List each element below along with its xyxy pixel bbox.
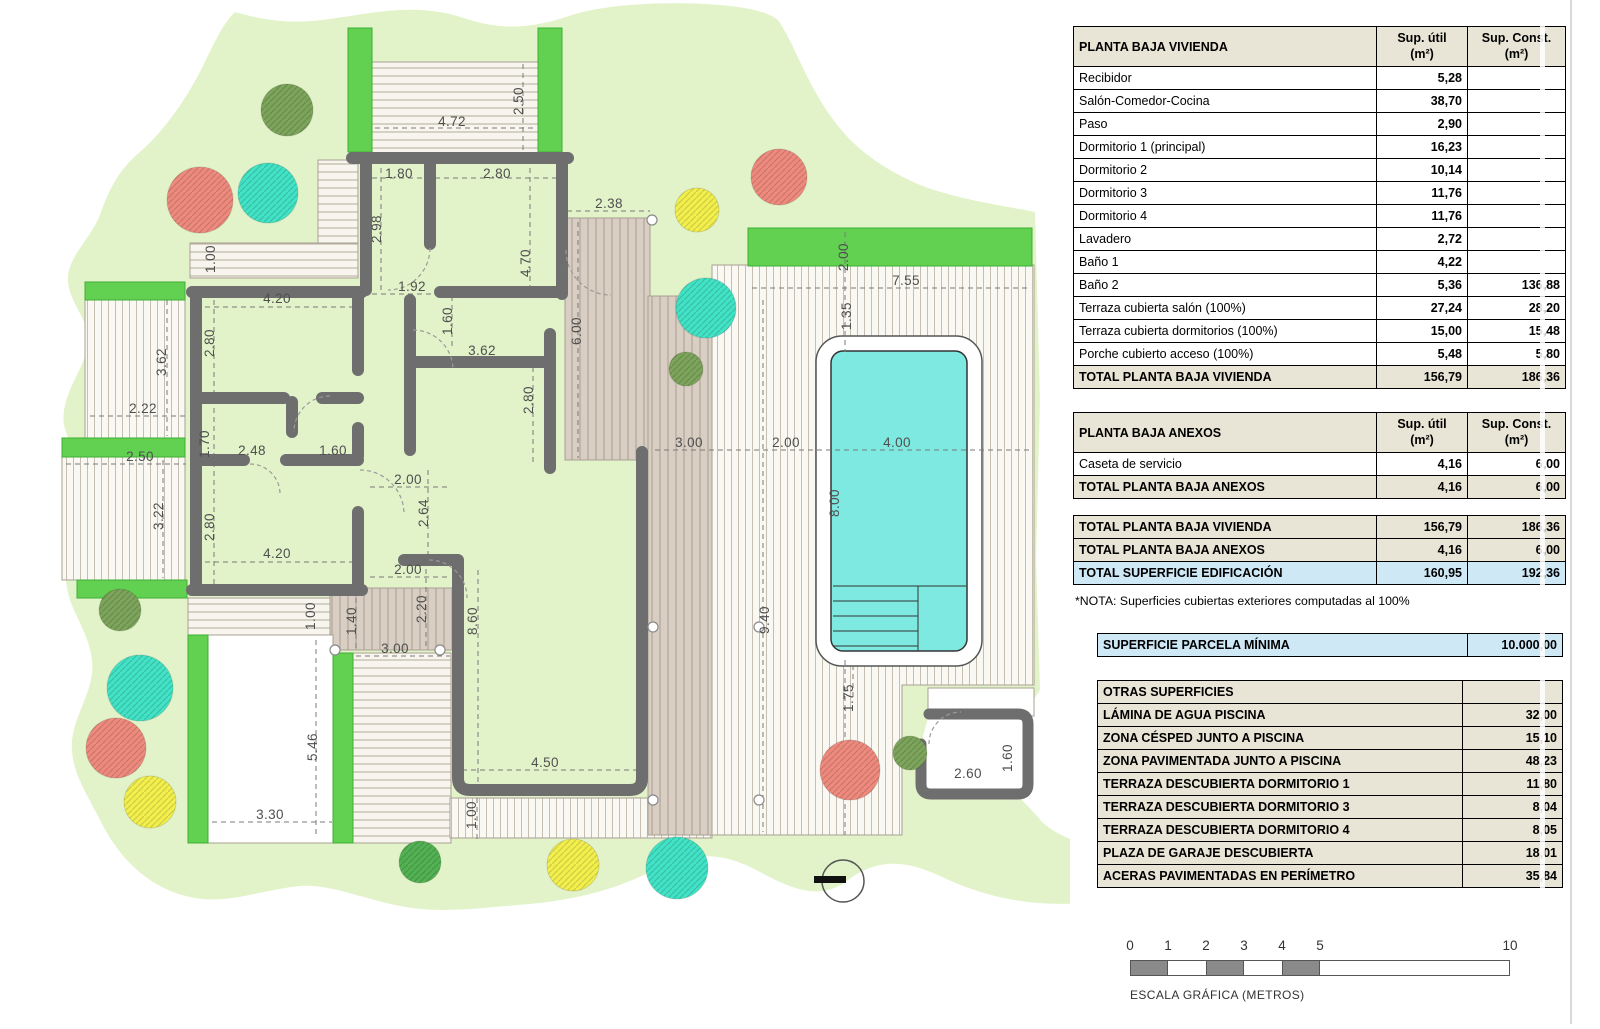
total-util-value: 156,79: [1377, 516, 1468, 539]
otras-value: 8,04: [1463, 796, 1563, 819]
dimension-label: 1.75: [841, 684, 856, 712]
row-label: Baño 2: [1074, 274, 1377, 297]
tree-hatch: [669, 352, 703, 386]
dimension-label: 4.70: [518, 249, 533, 277]
sup-util-value: 4,22: [1377, 251, 1468, 274]
dimension-label: 3.30: [256, 807, 284, 822]
row-label: Salón-Comedor-Cocina: [1074, 90, 1377, 113]
tree-hatch: [238, 163, 298, 223]
dimension-label: 1.60: [1000, 744, 1015, 772]
floor-plan: 2.504.721.802.802.382.984.706.001.921.60…: [0, 0, 1070, 1024]
table-title: PLANTA BAJA VIVIENDA: [1074, 27, 1377, 67]
sup-const-value: 15,48: [1468, 320, 1566, 343]
tree-hatch: [820, 740, 880, 800]
table-row: Caseta de servicio4,166,00: [1074, 453, 1566, 476]
dimension-label: 1.35: [839, 302, 854, 330]
otras-row: TERRAZA DESCUBIERTA DORMITORIO 111,80: [1098, 773, 1563, 796]
otras-label: PLAZA DE GARAJE DESCUBIERTA: [1098, 842, 1463, 865]
dimension-label: 1.60: [440, 307, 455, 335]
dimension-label: 1.70: [197, 430, 212, 458]
tree-hatch: [676, 278, 736, 338]
dimension-label: 2.80: [521, 386, 536, 414]
sup-const-value: [1468, 182, 1566, 205]
row-label: Dormitorio 2: [1074, 159, 1377, 182]
dimension-label: 2.64: [416, 499, 431, 527]
table-row: Recibidor5,28: [1074, 67, 1566, 90]
tree-hatch: [167, 167, 233, 233]
total-util-value: 156,79: [1377, 366, 1468, 389]
dimension-label: 4.72: [438, 114, 466, 129]
tree-hatch: [107, 655, 173, 721]
row-label: Terraza cubierta dormitorios (100%): [1074, 320, 1377, 343]
row-label: Caseta de servicio: [1074, 453, 1377, 476]
dimension-label: 7.55: [892, 273, 920, 288]
table-total-row: TOTAL PLANTA BAJA ANEXOS4,166,00: [1074, 476, 1566, 499]
table-row: Terraza cubierta salón (100%)27,2428,20: [1074, 297, 1566, 320]
dimension-label: 2.80: [202, 513, 217, 541]
total-const-value: 6,00: [1468, 539, 1566, 562]
row-label: Baño 1: [1074, 251, 1377, 274]
otras-label: TERRAZA DESCUBIERTA DORMITORIO 3: [1098, 796, 1463, 819]
porch-post: [435, 645, 445, 655]
dimension-label: 1.00: [303, 602, 318, 630]
note-text: *NOTA: Superficies cubiertas exteriores …: [1075, 594, 1410, 608]
dimension-label: 2.38: [595, 196, 623, 211]
otras-value: 11,80: [1463, 773, 1563, 796]
dimension-label: 4.00: [883, 435, 911, 450]
tree-hatch: [399, 841, 441, 883]
otras-value: 18,01: [1463, 842, 1563, 865]
sup-const-value: 136,88: [1468, 274, 1566, 297]
otras-label: ZONA PAVIMENTADA JUNTO A PISCINA: [1098, 750, 1463, 773]
porch-post: [330, 645, 340, 655]
dimension-label: 2.00: [772, 435, 800, 450]
table-row: Porche cubierto acceso (100%)5,485,80: [1074, 343, 1566, 366]
row-label: Terraza cubierta salón (100%): [1074, 297, 1377, 320]
total-util-value: 4,16: [1377, 539, 1468, 562]
row-label: Porche cubierto acceso (100%): [1074, 343, 1377, 366]
dimension-label: 4.50: [531, 755, 559, 770]
tree-hatch: [646, 837, 708, 899]
total-label: TOTAL PLANTA BAJA VIVIENDA: [1074, 366, 1377, 389]
tree-hatch: [547, 839, 599, 891]
total-const-value: 186,36: [1468, 516, 1566, 539]
total-label: TOTAL PLANTA BAJA ANEXOS: [1074, 476, 1377, 499]
dimension-label: 2.60: [954, 766, 982, 781]
total-const-value: 192,36: [1468, 562, 1566, 585]
total-const-value: 6,00: [1468, 476, 1566, 499]
otras-value: 48,23: [1463, 750, 1563, 773]
scan-artifact: [1540, 0, 1545, 900]
porch-post: [754, 795, 764, 805]
otras-row: LÁMINA DE AGUA PISCINA32,00: [1098, 704, 1563, 727]
sup-util-value: 27,24: [1377, 297, 1468, 320]
scale-tick-label: 1: [1164, 938, 1172, 953]
sup-const-value: [1468, 90, 1566, 113]
sup-util-value: 5,28: [1377, 67, 1468, 90]
table-row: Dormitorio 411,76: [1074, 205, 1566, 228]
porch-post: [648, 795, 658, 805]
otras-label: ZONA CÉSPED JUNTO A PISCINA: [1098, 727, 1463, 750]
column-header: Sup. útil(m²): [1377, 27, 1468, 67]
dimension-label: 2.50: [511, 87, 526, 115]
dimension-label: 6.00: [569, 317, 584, 345]
table-row: Baño 14,22: [1074, 251, 1566, 274]
dimension-label: 2.00: [394, 562, 422, 577]
otras-row: TERRAZA DESCUBIERTA DORMITORIO 48,05: [1098, 819, 1563, 842]
porch-post: [648, 622, 658, 632]
sup-const-value: [1468, 136, 1566, 159]
sup-util-value: 2,90: [1377, 113, 1468, 136]
dimension-label: 2.20: [414, 595, 429, 623]
tree-hatch: [99, 589, 141, 631]
totals-row: TOTAL PLANTA BAJA ANEXOS4,166,00: [1074, 539, 1566, 562]
table-title: PLANTA BAJA ANEXOS: [1074, 413, 1377, 453]
table-row: Lavadero2,72: [1074, 228, 1566, 251]
sup-const-value: 5,80: [1468, 343, 1566, 366]
column-header: Sup. Const.(m²): [1468, 27, 1566, 67]
dimension-label: 5.46: [305, 733, 320, 761]
table-row: Dormitorio 1 (principal)16,23: [1074, 136, 1566, 159]
sup-const-value: [1468, 228, 1566, 251]
sup-const-value: [1468, 251, 1566, 274]
otras-label: TERRAZA DESCUBIERTA DORMITORIO 4: [1098, 819, 1463, 842]
sup-const-value: [1468, 205, 1566, 228]
sup-const-value: [1468, 67, 1566, 90]
scale-bar-track: [1130, 960, 1510, 976]
column-header: Sup. útil(m²): [1377, 413, 1468, 453]
column-header: Sup. Const.(m²): [1468, 413, 1566, 453]
otras-row: TERRAZA DESCUBIERTA DORMITORIO 38,04: [1098, 796, 1563, 819]
otras-row: ZONA PAVIMENTADA JUNTO A PISCINA48,23: [1098, 750, 1563, 773]
otras-value: 32,00: [1463, 704, 1563, 727]
tree-hatch: [675, 188, 719, 232]
dimension-label: 1.00: [203, 245, 218, 273]
scale-tick-label: 4: [1278, 938, 1286, 953]
total-label: TOTAL SUPERFICIE EDIFICACIÓN: [1074, 562, 1377, 585]
dimension-label: 1.40: [344, 607, 359, 635]
table-header-row: PLANTA BAJA ANEXOSSup. útil(m²)Sup. Cons…: [1074, 413, 1566, 453]
scale-bar-segment: [1282, 960, 1320, 976]
otras-title: OTRAS SUPERFICIES: [1098, 681, 1463, 704]
dimension-label: 1.80: [385, 166, 413, 181]
dimension-label: 3.62: [154, 348, 169, 376]
scale-bar-caption: ESCALA GRÁFICA (METROS): [1130, 988, 1305, 1002]
table-row: Dormitorio 311,76: [1074, 182, 1566, 205]
otras-label: TERRAZA DESCUBIERTA DORMITORIO 1: [1098, 773, 1463, 796]
table-header-row: PLANTA BAJA VIVIENDASup. útil(m²)Sup. Co…: [1074, 27, 1566, 67]
dimension-label: 2.00: [836, 243, 851, 271]
row-label: Dormitorio 1 (principal): [1074, 136, 1377, 159]
dimension-label: 2.50: [126, 449, 154, 464]
otras-header-row: OTRAS SUPERFICIES: [1098, 681, 1563, 704]
otras-row: PLAZA DE GARAJE DESCUBIERTA18,01: [1098, 842, 1563, 865]
sup-const-value: [1468, 113, 1566, 136]
dimension-label: 2.80: [483, 166, 511, 181]
dimension-label: 2.80: [202, 329, 217, 357]
sup-util-value: 11,76: [1377, 205, 1468, 228]
totals-row: TOTAL PLANTA BAJA VIVIENDA156,79186,36: [1074, 516, 1566, 539]
dimension-label: 3.62: [468, 343, 496, 358]
totals-row: TOTAL SUPERFICIE EDIFICACIÓN160,95192,36: [1074, 562, 1566, 585]
scale-tick-label: 5: [1316, 938, 1324, 953]
dimension-label: 2.22: [129, 401, 157, 416]
scale-tick-label: 0: [1126, 938, 1134, 953]
parcela-value: 10.000,00: [1468, 634, 1563, 657]
table-row: Paso2,90: [1074, 113, 1566, 136]
scale-bar-segment: [1206, 960, 1244, 976]
tree-hatch: [751, 149, 807, 205]
otras-value: 35,84: [1463, 865, 1563, 888]
sup-const-value: 6,00: [1468, 453, 1566, 476]
row-label: Lavadero: [1074, 228, 1377, 251]
floor-plan-svg: 2.504.721.802.802.382.984.706.001.921.60…: [0, 0, 1070, 1024]
dimension-label: 1.60: [319, 443, 347, 458]
row-label: Dormitorio 4: [1074, 205, 1377, 228]
sup-const-value: [1468, 159, 1566, 182]
total-const-value: 186,36: [1468, 366, 1566, 389]
scale-tick-label: 10: [1502, 938, 1517, 953]
otras-label: ACERAS PAVIMENTADAS EN PERÍMETRO: [1098, 865, 1463, 888]
tree-hatch: [261, 84, 313, 136]
total-util-value: 160,95: [1377, 562, 1468, 585]
otras-value: 15,10: [1463, 727, 1563, 750]
tree-hatch: [124, 776, 176, 828]
sup-util-value: 15,00: [1377, 320, 1468, 343]
dimension-label: 9.40: [757, 606, 772, 634]
tree-hatch: [893, 736, 927, 770]
otras-row: ACERAS PAVIMENTADAS EN PERÍMETRO35,84: [1098, 865, 1563, 888]
otras-title-spacer: [1463, 681, 1563, 704]
otras-row: ZONA CÉSPED JUNTO A PISCINA15,10: [1098, 727, 1563, 750]
table-total-row: TOTAL PLANTA BAJA VIVIENDA156,79186,36: [1074, 366, 1566, 389]
sup-util-value: 38,70: [1377, 90, 1468, 113]
scale-tick-label: 2: [1202, 938, 1210, 953]
dimension-label: 3.00: [675, 435, 703, 450]
dimension-label: 1.00: [464, 801, 479, 829]
sup-util-value: 11,76: [1377, 182, 1468, 205]
parcela-row: SUPERFICIE PARCELA MÍNIMA10.000,00: [1098, 634, 1563, 657]
total-label: TOTAL PLANTA BAJA ANEXOS: [1074, 539, 1377, 562]
dimension-label: 3.00: [381, 641, 409, 656]
total-label: TOTAL PLANTA BAJA VIVIENDA: [1074, 516, 1377, 539]
otras-value: 8,05: [1463, 819, 1563, 842]
sup-util-value: 5,36: [1377, 274, 1468, 297]
porch-post: [647, 215, 657, 225]
sup-util-value: 5,48: [1377, 343, 1468, 366]
sup-util-value: 2,72: [1377, 228, 1468, 251]
dimension-label: 2.98: [369, 215, 384, 243]
table-row: Terraza cubierta dormitorios (100%)15,00…: [1074, 320, 1566, 343]
scale-bar-segment: [1130, 960, 1168, 976]
dimension-label: 3.22: [151, 502, 166, 530]
sup-const-value: 28,20: [1468, 297, 1566, 320]
sup-util-value: 4,16: [1377, 453, 1468, 476]
dimension-label: 2.00: [394, 472, 422, 487]
row-label: Dormitorio 3: [1074, 182, 1377, 205]
dimension-label: 4.20: [263, 546, 291, 561]
sheet-edge: [1570, 0, 1572, 1024]
tree-hatch: [86, 718, 146, 778]
dimension-label: 8.60: [465, 607, 480, 635]
dimension-label: 4.20: [263, 291, 291, 306]
table-row: Dormitorio 210,14: [1074, 159, 1566, 182]
dimension-label: 1.92: [398, 279, 426, 294]
row-label: Paso: [1074, 113, 1377, 136]
table-row: Baño 25,36136,88: [1074, 274, 1566, 297]
table-row: Salón-Comedor-Cocina38,70: [1074, 90, 1566, 113]
dimension-label: 8.00: [827, 489, 842, 517]
sup-util-value: 10,14: [1377, 159, 1468, 182]
sup-util-value: 16,23: [1377, 136, 1468, 159]
dimension-label: 2.48: [238, 443, 266, 458]
row-label: Recibidor: [1074, 67, 1377, 90]
otras-label: LÁMINA DE AGUA PISCINA: [1098, 704, 1463, 727]
scale-tick-label: 3: [1240, 938, 1248, 953]
total-util-value: 4,16: [1377, 476, 1468, 499]
parcela-label: SUPERFICIE PARCELA MÍNIMA: [1098, 634, 1468, 657]
